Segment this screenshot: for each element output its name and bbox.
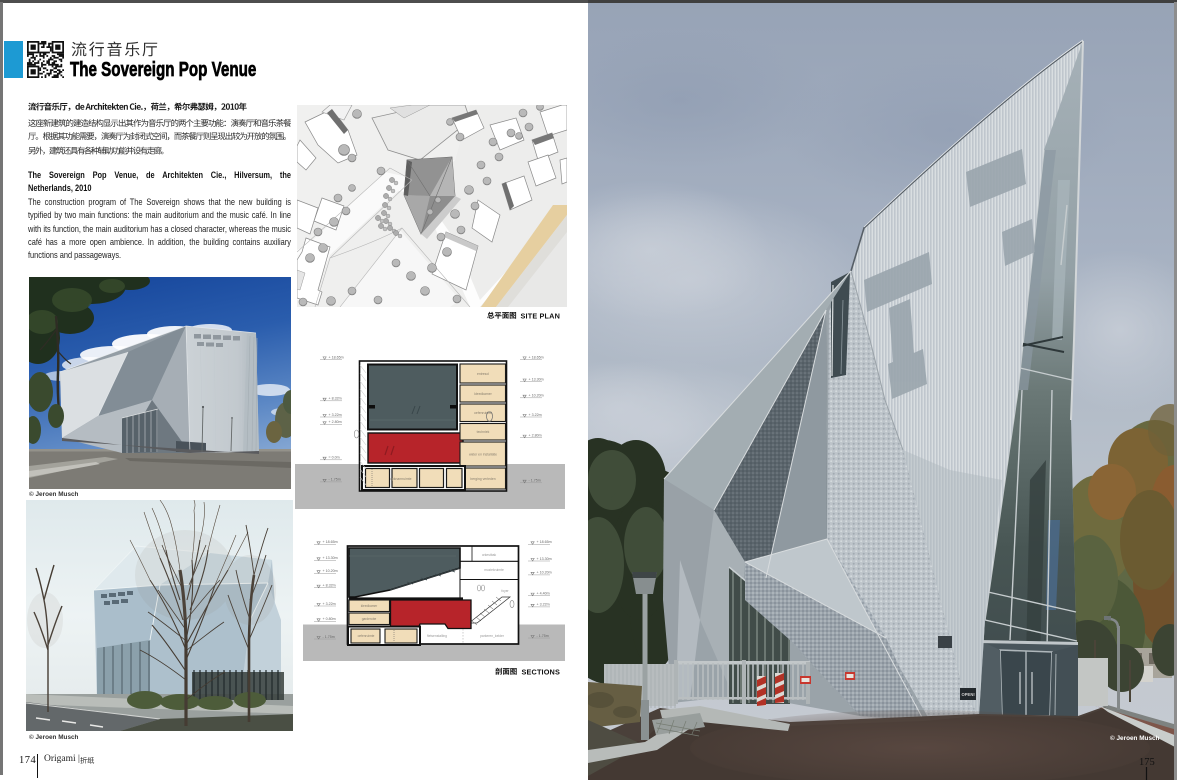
svg-text:175: 175 [1139, 757, 1155, 768]
svg-text:+ 8.32m: + 8.32m [323, 584, 336, 588]
svg-text:foyer: foyer [501, 589, 509, 593]
svg-text:muziekruimte: muziekruimte [484, 568, 504, 572]
svg-text:+ 13.30m: + 13.30m [537, 557, 552, 561]
svg-text:+ 4.40m: + 4.40m [537, 592, 550, 596]
svg-text:+ 3.22m: + 3.22m [529, 413, 542, 417]
svg-text:+ 18.65m: + 18.65m [529, 355, 544, 359]
svg-text:+ 13.30m: + 13.30m [529, 377, 544, 381]
svg-text:opknamruimte: opknamruimte [390, 477, 412, 481]
svg-text:- 1.75m: - 1.75m [323, 635, 335, 639]
svg-text:+ 3.22m: + 3.22m [329, 413, 342, 417]
svg-text:techniek: techniek [477, 430, 490, 434]
svg-text:+ 18.65m: + 18.65m [537, 540, 552, 544]
svg-text:+ 10.20m: + 10.20m [529, 394, 544, 398]
svg-text:berging verleden: berging verleden [470, 477, 495, 481]
svg-text:orkestbak: orkestbak [482, 553, 497, 557]
svg-text:+ 13.30m: + 13.30m [323, 556, 338, 560]
svg-text:+ 18.65m: + 18.65m [329, 355, 344, 359]
svg-text:entresol: entresol [477, 372, 489, 376]
svg-text:- 1.75m: - 1.75m [537, 634, 549, 638]
svg-text:OPEN!: OPEN! [962, 692, 975, 697]
svg-text:= 0.0m: = 0.0m [329, 456, 340, 460]
svg-text:+ 2.80m: + 2.80m [329, 420, 342, 424]
svg-text:kleedkamer: kleedkamer [474, 392, 492, 396]
svg-text:+ 3.22m: + 3.22m [323, 602, 336, 606]
svg-text:+ 10.20m: + 10.20m [323, 569, 338, 573]
svg-text:oefenruimte: oefenruimte [358, 634, 375, 638]
svg-text:+ 18.65m: + 18.65m [323, 540, 338, 544]
svg-text:fietsenstalling: fietsenstalling [427, 634, 447, 638]
svg-text:- 1.75m: - 1.75m [329, 478, 341, 482]
svg-text:+ 10.20m: + 10.20m [537, 571, 552, 575]
svg-text:- 1.75m: - 1.75m [529, 479, 541, 483]
svg-text:garderobe: garderobe [362, 617, 377, 621]
svg-text:+ 2.80m: + 2.80m [529, 434, 542, 438]
svg-text:+ 0.80m: + 0.80m [323, 617, 336, 621]
svg-text:+ 3.22m: + 3.22m [537, 603, 550, 607]
svg-text:+ 8.32m: + 8.32m [329, 397, 342, 401]
svg-text:water en installatie: water en installatie [469, 452, 497, 456]
svg-text:parkeren_kelder: parkeren_kelder [480, 634, 505, 638]
svg-text:© Jeroen Musch: © Jeroen Musch [1110, 734, 1160, 742]
svg-text:kleedkamer: kleedkamer [361, 604, 378, 608]
